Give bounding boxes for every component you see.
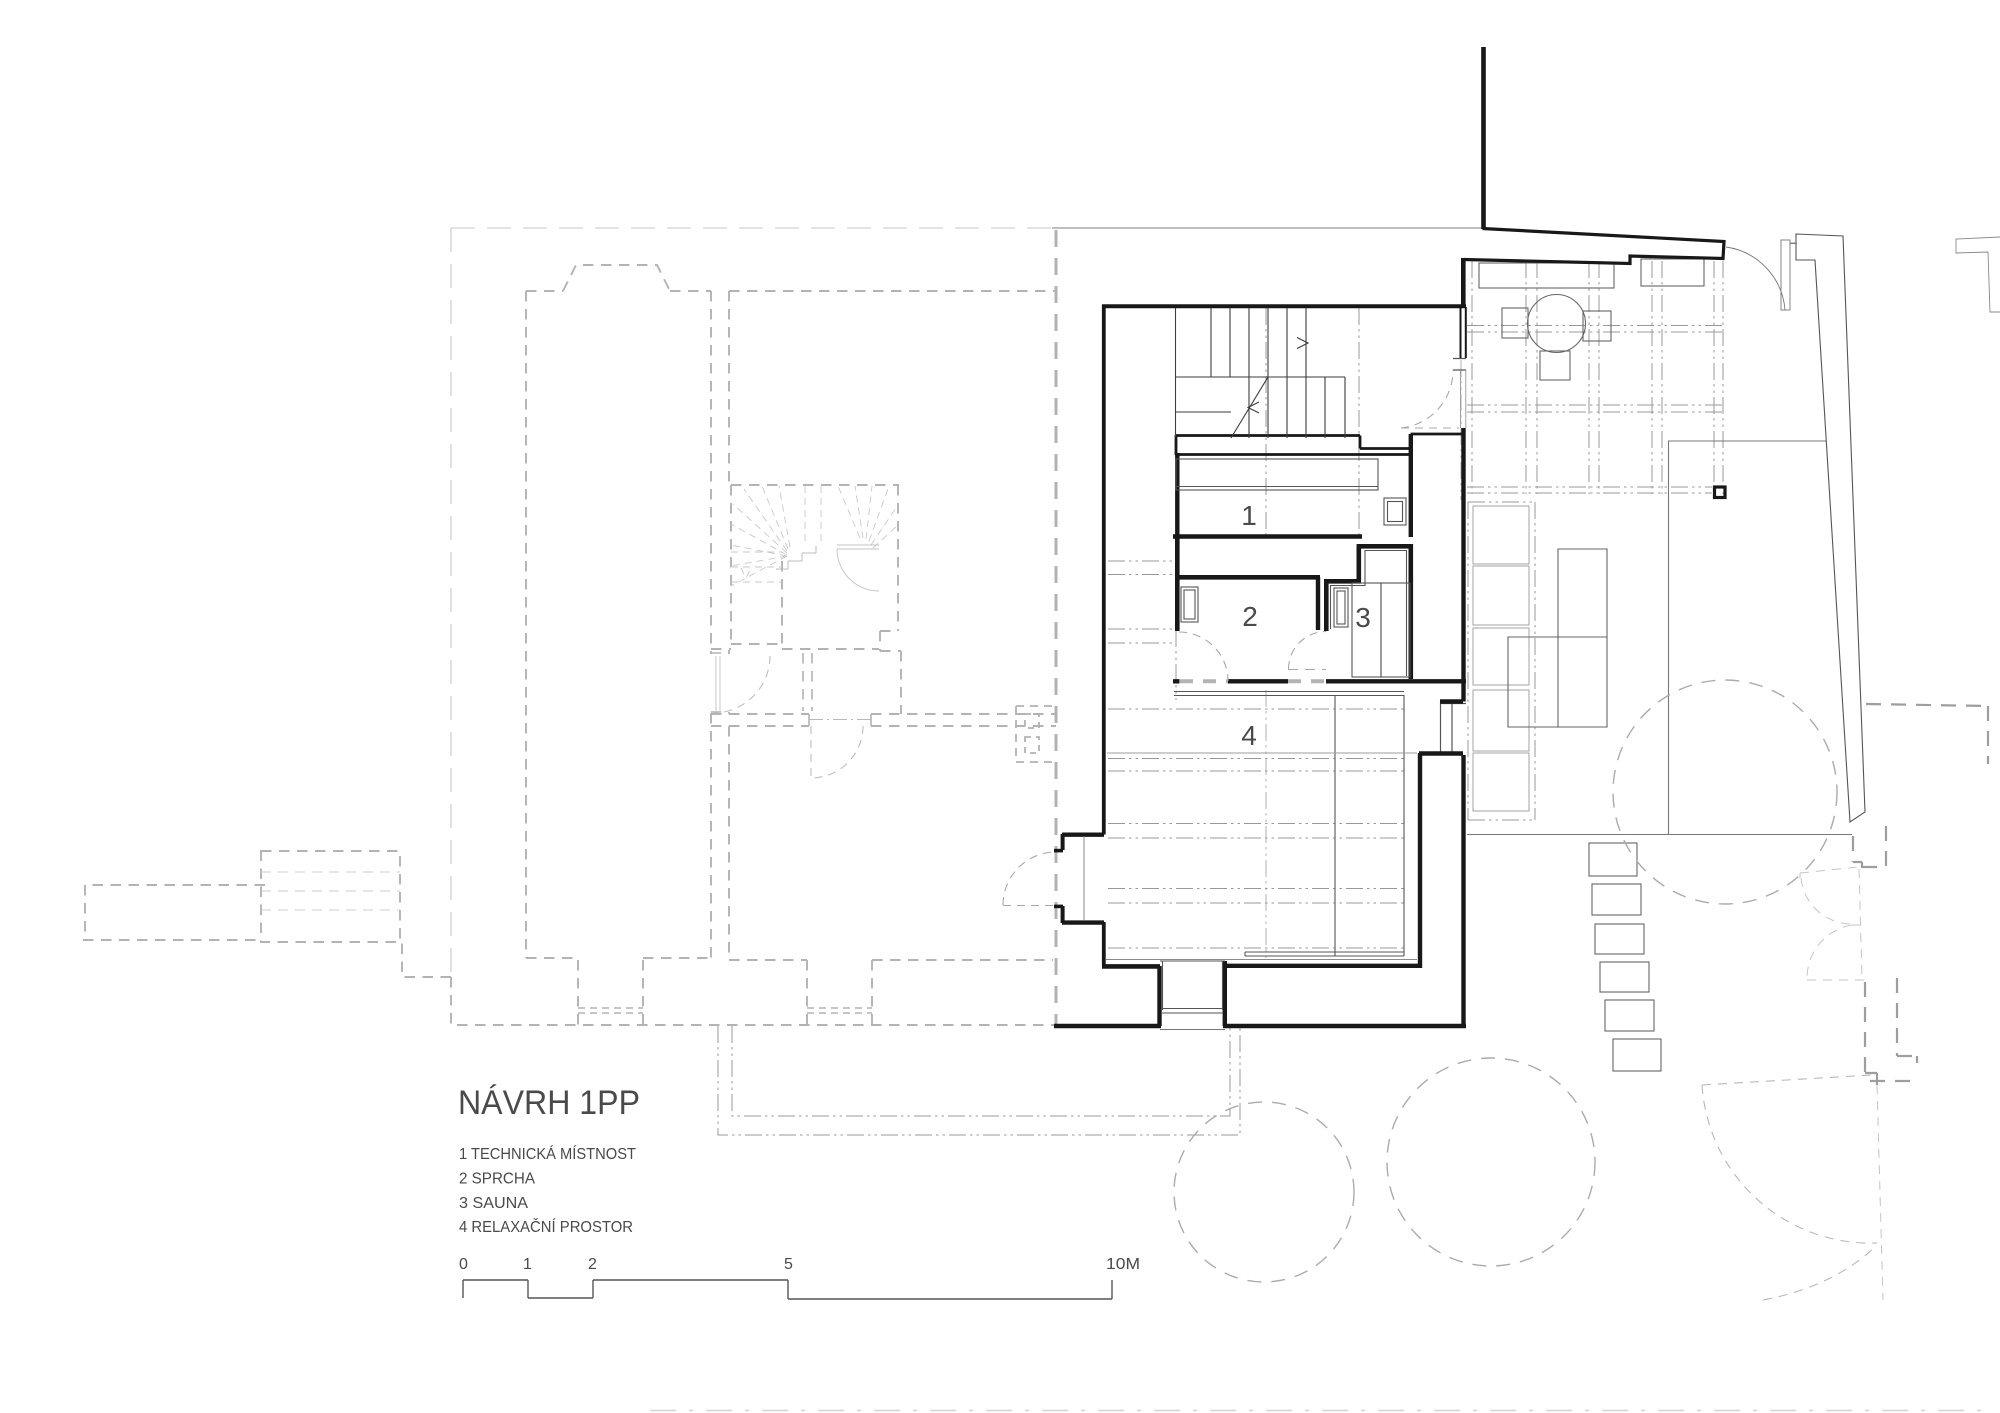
svg-text:0: 0: [459, 1256, 468, 1273]
svg-text:5: 5: [784, 1256, 793, 1273]
svg-text:10M: 10M: [1106, 1256, 1140, 1273]
svg-text:3 SAUNA: 3 SAUNA: [459, 1195, 528, 1212]
svg-text:1: 1: [523, 1256, 532, 1273]
svg-text:2: 2: [588, 1256, 597, 1273]
svg-text:1 TECHNICKÁ MÍSTNOST: 1 TECHNICKÁ MÍSTNOST: [459, 1144, 636, 1163]
svg-text:4 RELAXAČNÍ PROSTOR: 4 RELAXAČNÍ PROSTOR: [459, 1217, 633, 1236]
svg-text:1: 1: [1241, 500, 1257, 531]
svg-text:2 SPRCHA: 2 SPRCHA: [459, 1171, 535, 1188]
svg-text:3: 3: [1355, 602, 1371, 633]
svg-text:2: 2: [1242, 601, 1258, 632]
svg-text:4: 4: [1241, 720, 1257, 751]
svg-text:NÁVRH 1PP: NÁVRH 1PP: [458, 1083, 640, 1122]
